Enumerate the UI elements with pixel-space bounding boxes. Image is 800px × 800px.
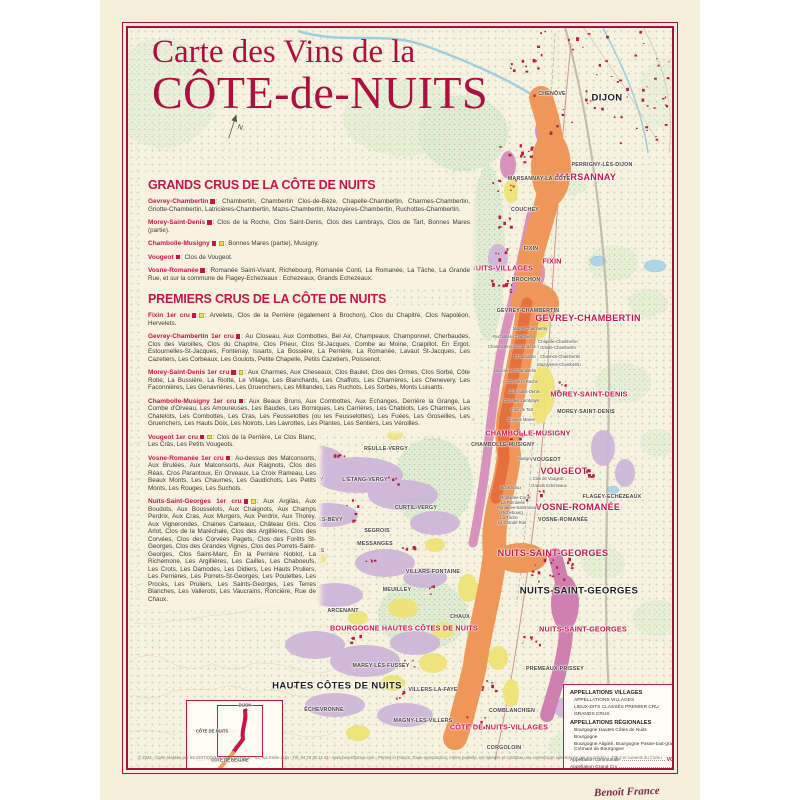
- poster-frame: N Carte des Vins de la CÔTE-de-NUITS GRA…: [122, 22, 678, 774]
- cru-list: : Aux Argilas, Aux Boudots, Aux Bousselo…: [148, 498, 316, 603]
- wine-map-poster: N Carte des Vins de la CÔTE-de-NUITS GRA…: [100, 0, 700, 800]
- cru-entry: Vosne-Romanée: Romanée Saint-Vivant, Ric…: [148, 267, 470, 282]
- cru-commune: Vosne-Romanée: [148, 267, 198, 274]
- map-label: COUCHEY: [511, 207, 539, 213]
- map-label: CHAMBOLLE-MUSIGNY: [485, 429, 570, 438]
- red-square-icon: [207, 220, 212, 225]
- map-label: Ruchottes-Chambertin: [493, 335, 535, 339]
- premiers-crus-header: PREMIERS CRUS DE LA CÔTE DE NUITS: [148, 292, 386, 306]
- red-square-icon: [236, 334, 241, 339]
- cru-entry: Vosne-Romanée 1er cru: Au-dessus des Mal…: [148, 455, 316, 493]
- cru-color-marks: [198, 267, 206, 274]
- map-label: Clos de la Roche: [506, 380, 538, 384]
- map-label: DIJON: [591, 93, 622, 104]
- red-square-icon: [244, 499, 249, 504]
- cru-color-marks: [198, 434, 213, 441]
- poster-title: Carte des Vins de la CÔTE-de-NUITS: [152, 36, 488, 117]
- cru-commune: Vougeot: [148, 254, 174, 261]
- red-square-icon: [192, 313, 197, 318]
- map-label: FLAGEY-ECHÉZEAUX: [583, 494, 642, 500]
- cru-entry: Fixin 1er cru: Arvelets, Clos de la Perr…: [148, 312, 470, 327]
- map-label: BOURGOGNE HAUTES CÔTES DE NUITS: [330, 624, 478, 633]
- map-label: CÔTE DE NUITS-VILLAGES: [450, 723, 548, 732]
- red-square-icon: [200, 268, 205, 273]
- premiers-crus-list-narrow: Vougeot 1er cru: Clos de la Perrière, Le…: [148, 434, 316, 604]
- red-square-icon: [231, 370, 236, 375]
- map-label: VILLERS-LA-FAYE: [408, 687, 457, 693]
- map-label: BROCHON: [512, 277, 541, 283]
- legend-item: Bourgogne Hautes Côtes de Nuits: [574, 728, 674, 733]
- legend-item-label: LIEUX-DITS CLASSÉS PREMIER CRU: [574, 705, 674, 710]
- map-label: VOUGEOT: [533, 457, 561, 463]
- map-label: CORGOLOIN: [487, 745, 521, 751]
- map-canvas: N Carte des Vins de la CÔTE-de-NUITS GRA…: [126, 26, 674, 770]
- map-label: MAGNY-LES-VILLERS: [393, 718, 452, 724]
- map-label: Bonnes Mares: [508, 418, 535, 422]
- cru-color-marks: [190, 312, 205, 319]
- cru-entry: Chambolle-Musigny: Bonnes Mares (partie)…: [148, 240, 470, 248]
- map-label: Charmes-Chambertin: [540, 355, 580, 359]
- map-label: Echézeaux: [501, 486, 522, 490]
- cru-color-marks: [242, 498, 257, 505]
- legend-item: LIEUX-DITS CLASSÉS PREMIER CRU: [574, 705, 674, 710]
- map-label: VOUGEOT: [540, 466, 587, 476]
- premiers-crus-list: Fixin 1er cru: Arvelets, Clos de la Perr…: [148, 312, 470, 428]
- cru-color-marks: [237, 398, 245, 405]
- map-label: Musigny: [517, 457, 533, 461]
- yellow-square-icon: [199, 313, 204, 318]
- map-label: FIXIN: [542, 257, 561, 266]
- map-label: Grands Echézeaux: [531, 484, 567, 488]
- grands-crus-header: GRANDS CRUS DE LA CÔTE DE NUITS: [148, 178, 375, 192]
- yellow-square-icon: [207, 435, 212, 440]
- map-label: Latricières-Chambertin: [494, 369, 536, 373]
- cru-entry: Vougeot: Clos de Vougeot.: [148, 254, 470, 262]
- map-label: Mazoyères-Chambertin: [537, 363, 581, 367]
- legend-item-label: Bourgogne Aligoté, Bourgogne Passe-tout-…: [574, 742, 674, 753]
- map-label: Chambertin-Clos de Bèze: [488, 345, 536, 349]
- cru-entry: Morey-Saint-Denis 1er cru: Aux Charmes, …: [148, 369, 470, 392]
- legend-item: APPELLATIONS VILLAGES: [574, 698, 674, 703]
- legend-item-label: Bourgogne Hautes Côtes de Nuits: [574, 728, 674, 733]
- cru-entry: Chambolle-Musigny 1er cru: Aux Beaux Bru…: [148, 398, 470, 428]
- red-square-icon: [210, 199, 215, 204]
- legend-regionales-items: Bourgogne Hautes Côtes de NuitsBourgogne…: [570, 728, 674, 753]
- cru-list: : Bonnes Mares (partie), Musigny.: [225, 240, 319, 247]
- map-label: FIXIN: [524, 246, 539, 252]
- legend-item: GRANDS CRUS: [574, 712, 674, 717]
- legend-footer-row: Appellation Grand CruRichebourg: [570, 764, 674, 770]
- legend-footer-value: VOSNE-ROMANÉE: [667, 757, 674, 763]
- legend-villages-items: APPELLATIONS VILLAGESLIEUX-DITS CLASSÉS …: [570, 698, 674, 717]
- map-label: GEVREY-CHAMBERTIN: [497, 308, 560, 314]
- map-label: La Grande Rue: [498, 521, 527, 525]
- map-label: GEVREY-CHAMBERTIN: [535, 313, 641, 323]
- map-label: PERRIGNY-LÈS-DIJON: [572, 162, 633, 168]
- cru-commune: Nuits-Saint-Georges 1er cru: [148, 498, 242, 505]
- yellow-square-icon: [239, 370, 244, 375]
- map-label: MOREY-SAINT-DENIS: [550, 390, 627, 399]
- cru-commune: Vosne-Romanée 1er cru: [148, 455, 224, 462]
- title-line-2: CÔTE-de-NUITS: [152, 70, 488, 117]
- copyright-line: © 2024 - Carte réalisée par les EDITIONS…: [138, 755, 662, 760]
- map-label: Mazis-Chambertin: [513, 327, 547, 331]
- cru-color-marks: [205, 219, 213, 226]
- map-label: MOREY-SAINT-DENIS: [557, 409, 615, 415]
- dotted-leader: [619, 767, 674, 768]
- cru-commune: Vougeot 1er cru: [148, 434, 198, 441]
- map-label: Clos de Tart: [511, 408, 533, 412]
- cru-commune: Fixin 1er cru: [148, 312, 190, 319]
- cru-entry: Nuits-Saint-Georges 1er cru: Aux Argilas…: [148, 498, 316, 603]
- map-label: Chambertin: [514, 355, 536, 359]
- cru-color-marks: [229, 369, 244, 376]
- map-label: VOSNE-ROMANÉE: [536, 502, 620, 512]
- cru-list: : Clos de Vougeot.: [181, 254, 232, 261]
- map-label: Griotte-Chambertin: [540, 346, 576, 350]
- map-label: NUITS-SAINT-GEORGES: [498, 548, 609, 558]
- cru-commune: Chambolle-Musigny: [148, 240, 210, 247]
- map-label: Clos de Vougeot: [533, 477, 564, 481]
- cru-color-marks: [210, 240, 225, 247]
- map-label: CHAUX: [450, 614, 470, 620]
- publisher-signature: Benoît France: [594, 785, 660, 799]
- cru-entry: Vougeot 1er cru: Clos de la Perrière, Le…: [148, 434, 316, 449]
- map-label: CÔTE DE NUITS: [196, 729, 228, 734]
- legend-footer-label: Appellation Grand Cru: [570, 765, 617, 770]
- map-label: DIJON: [239, 703, 252, 708]
- cru-commune: Morey-Saint-Denis: [148, 219, 205, 226]
- map-label: CHAMBOLLE-MUSIGNY: [471, 442, 535, 448]
- red-square-icon: [239, 399, 244, 404]
- map-label: CHENÔVE: [538, 91, 566, 97]
- cru-commune: Morey-Saint-Denis 1er cru: [148, 369, 229, 376]
- legend-item-label: GRANDS CRUS: [574, 712, 674, 717]
- map-label: Clos des Lambrays: [503, 399, 539, 403]
- map-label: ÉCHEVRONNE: [304, 707, 343, 713]
- yellow-square-icon: [219, 241, 224, 246]
- red-square-icon: [212, 241, 217, 246]
- yellow-square-icon: [251, 499, 256, 504]
- cru-color-marks: [208, 198, 216, 205]
- title-line-1: Carte des Vins de la: [152, 36, 488, 70]
- crus-panel: GRANDS CRUS DE LA CÔTE DE NUITS Gevrey-C…: [148, 178, 470, 609]
- cru-entry: Gevrey-Chambertin 1er cru: Au Closeau, A…: [148, 333, 470, 363]
- legend-item-label: Bourgogne: [574, 735, 674, 740]
- map-label: HAUTES CÔTES DE NUITS: [272, 681, 402, 692]
- cru-commune: Chambolle-Musigny 1er cru: [148, 398, 237, 405]
- map-label: NUITS-SAINT-GEORGES: [539, 625, 627, 634]
- legend-item-label: APPELLATIONS VILLAGES: [574, 698, 674, 703]
- red-square-icon: [200, 435, 205, 440]
- red-square-icon: [226, 456, 231, 461]
- map-label: VOSNE-ROMANÉE: [538, 517, 588, 523]
- map-label: PREMEAUX-PRISSEY: [526, 666, 584, 672]
- map-label: MARSANNAY-LA-CÔTE: [508, 176, 570, 182]
- cru-entry: Gevrey-Chambertin: Chambertin, Chamberti…: [148, 198, 470, 213]
- grands-crus-list: Gevrey-Chambertin: Chambertin, Chamberti…: [148, 198, 470, 282]
- map-label: NUITS-SAINT-GEORGES: [520, 586, 638, 597]
- map-label: MAREY-LÈS-FUSSEY: [352, 663, 409, 669]
- map-label: Clos Saint-Denis: [508, 390, 539, 394]
- map-label: COMBLANCHIEN: [489, 708, 535, 714]
- legend-title-regionales: APPELLATIONS RÉGIONALES: [570, 720, 674, 726]
- cru-entry: Morey-Saint-Denis: Clos de la Roche, Clo…: [148, 219, 470, 234]
- map-label: Chapelle-Chambertin: [538, 340, 578, 344]
- legend-item: Bourgogne Aligoté, Bourgogne Passe-tout-…: [574, 742, 674, 753]
- cru-color-marks: [174, 254, 182, 261]
- cru-commune: Gevrey-Chambertin: [148, 198, 208, 205]
- cru-commune: Gevrey-Chambertin 1er cru: [148, 333, 234, 340]
- legend-item: Bourgogne: [574, 735, 674, 740]
- red-square-icon: [176, 255, 181, 260]
- legend-title-villages: APPELLATIONS VILLAGES: [570, 690, 674, 696]
